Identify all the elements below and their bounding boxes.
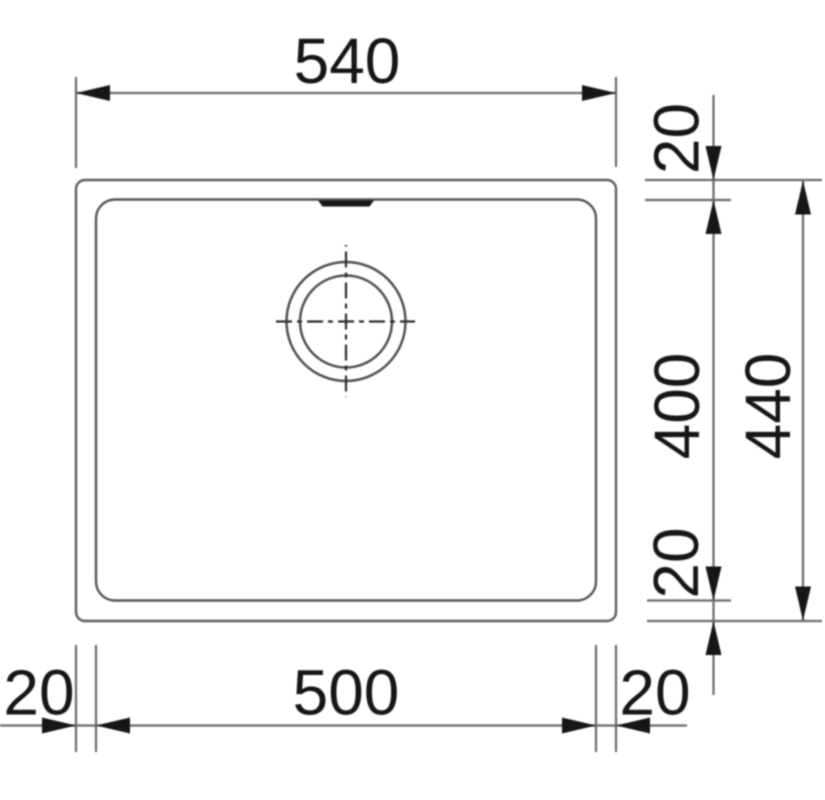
svg-text:20: 20 bbox=[3, 657, 74, 729]
svg-text:500: 500 bbox=[293, 657, 400, 729]
svg-text:20: 20 bbox=[619, 657, 690, 729]
svg-text:20: 20 bbox=[640, 527, 712, 598]
svg-text:440: 440 bbox=[732, 353, 804, 460]
svg-text:540: 540 bbox=[294, 25, 401, 97]
svg-text:20: 20 bbox=[641, 103, 713, 174]
svg-text:400: 400 bbox=[641, 353, 713, 460]
